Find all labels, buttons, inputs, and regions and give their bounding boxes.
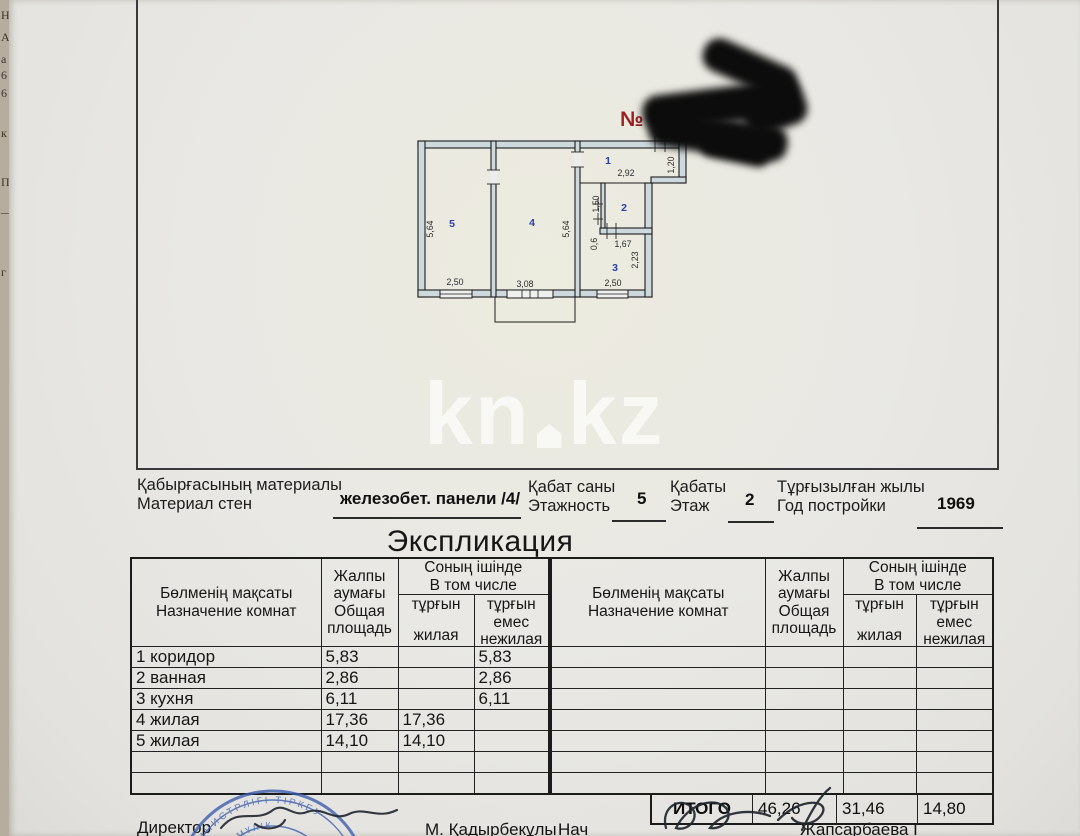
director-signature [215,798,405,836]
table-row [551,731,993,752]
table-row: 2 ванная 2,86 2,86 [131,668,549,689]
col-header-purpose: Бөлменің мақсаты Назначение комнат [131,558,321,647]
col-living-kk: тұрғын [399,596,474,614]
cell-total-area: 6,11 [321,689,398,710]
col-total-ru: Общая площадь [322,603,398,638]
cell-room-name: 1 коридор [131,647,321,668]
cell-total-area: 14,10 [321,731,398,752]
plan-partitions [495,183,651,322]
cell-room-name [131,752,321,773]
house-icon [537,424,562,448]
watermark: kn kz [424,374,665,454]
room-label-2: 2 [621,202,627,214]
storeys-label-kk: Қабат саны [528,478,615,497]
dim-room5-width: 2,50 [446,277,463,287]
cell-room-name [551,731,765,752]
cell-nonliving-area [916,752,993,773]
cell-nonliving-area [916,773,993,794]
cell-living-area: 14,10 [398,731,474,752]
col-purpose-ru: Назначение комнат [552,603,765,621]
table-row [551,752,993,773]
year-label-kk: Тұрғызылған жылы [777,478,925,497]
director-name: М. Қадырбекұлы [425,820,557,836]
material-label-kk: Қабырғасының материалы [137,476,342,495]
col-header-including: Соның ішінде В том числе [398,558,549,595]
dim-room1-width: 2,92 [617,168,634,178]
cell-living-area [398,689,474,710]
cell-room-name: 4 жилая [131,710,321,731]
col-living-ru: жилая [399,627,474,645]
room-label-3: 3 [612,262,618,274]
dim-room3-width: 2,50 [604,278,621,288]
cell-nonliving-area [474,773,549,794]
floor-label-ru: Этаж [670,497,726,516]
cell-total-area [765,752,843,773]
col-living-ru: жилая [844,627,916,645]
col-nonliving-ru: нежилая [475,631,549,647]
cell-living-area [843,668,916,689]
table-row [551,647,993,668]
explication-table-left: Бөлменің мақсаты Назначение комнат Жалпы… [130,557,550,795]
col-total-kk: Жалпы аумағы [322,568,398,603]
cell-room-name [551,752,765,773]
edge-fragment: к [1,126,7,141]
room-label-5: 5 [449,218,455,230]
plan-room-labels: 5 4 1 2 3 [449,155,627,274]
cell-living-area [843,710,916,731]
cell-total-area: 2,86 [321,668,398,689]
cell-room-name: 3 кухня [131,689,321,710]
col-nonliving-kk: тұрғын емес [917,596,993,631]
plan-door-openings [490,152,581,184]
frame-bottom-line [136,468,999,470]
cell-total-area [765,689,843,710]
floor-label-kk: Қабаты [670,478,726,497]
cell-nonliving-area [916,731,993,752]
explication-table-right: Бөлменің мақсаты Назначение комнат Жалпы… [550,557,994,795]
cell-nonliving-area [916,647,993,668]
col-header-purpose: Бөлменің мақсаты Назначение комнат [551,558,765,647]
dim-niche-height: 1,20 [666,156,676,173]
cell-living-area [398,647,474,668]
scanned-document: Н А а 6 6 к П — г [0,0,1080,836]
col-header-nonliving: тұрғын емес нежилая [916,595,993,647]
year-label: Тұрғызылған жылы Год постройки [777,478,925,516]
col-header-including: Соның ішінде В том числе [843,558,993,595]
edge-fragment: г [1,265,6,280]
col-including-kk: Соның ішінде [399,559,549,577]
cell-total-area: 17,36 [321,710,398,731]
col-header-total-area: Жалпы аумағы Общая площадь [765,558,843,647]
cell-living-area [843,689,916,710]
cell-nonliving-area [916,710,993,731]
cell-total-area [321,752,398,773]
watermark-text-left: kn [424,374,531,454]
table-row [551,710,993,731]
cell-living-area [843,752,916,773]
cell-total-area [765,668,843,689]
right-official-label: Нач [558,820,588,836]
table-row: 1 коридор 5,83 5,83 [131,647,549,668]
col-total-kk: Жалпы аумағы [766,568,843,603]
cell-room-name [551,710,765,731]
col-header-nonliving: тұрғын емес нежилая [474,595,549,647]
storeys-underline [612,520,666,522]
watermark-text-right: kz [568,374,665,454]
cell-living-area [398,752,474,773]
room-label-1: 1 [605,155,611,167]
cell-nonliving-area [474,710,549,731]
col-purpose-kk: Бөлменің мақсаты [552,585,765,603]
cell-room-name: 2 ванная [131,668,321,689]
table-row [551,689,993,710]
col-header-living: тұрғын жилая [398,595,474,647]
dim-wall-width: 0,6 [589,238,599,250]
cell-nonliving-area: 5,83 [474,647,549,668]
cell-room-name [551,689,765,710]
dim-room2-width: 1,67 [614,239,631,249]
cell-total-area [765,710,843,731]
year-underline [917,527,1003,529]
material-value: железобет. панели /4/ [340,489,520,509]
year-value: 1969 [937,494,975,514]
table-row: 3 кухня 6,11 6,11 [131,689,549,710]
frame-left-line [136,0,138,470]
floor-plan: 5 4 1 2 3 5,64 2,50 3,08 5,64 2,92 1,20 … [403,132,703,332]
cell-nonliving-area: 2,86 [474,668,549,689]
floor-label: Қабаты Этаж [670,478,726,516]
col-living-kk: тұрғын [844,596,916,614]
cell-living-area: 17,36 [398,710,474,731]
col-header-living: тұрғын жилая [843,595,916,647]
material-label-ru: Материал стен [137,495,342,514]
cell-room-name [551,668,765,689]
floor-underline [728,521,774,523]
edge-fragment: а [1,52,6,67]
col-header-total-area: Жалпы аумағы Общая площадь [321,558,398,647]
col-purpose-ru: Назначение комнат [132,603,321,621]
col-total-ru: Общая площадь [766,603,843,638]
col-nonliving-ru: нежилая [917,631,993,647]
cell-living-area [398,668,474,689]
material-label: Қабырғасының материалы Материал стен [137,476,342,514]
col-including-ru: В том числе [399,577,549,595]
totals-nonliving-area: 14,80 [917,795,992,823]
col-nonliving-kk: тұрғын емес [475,596,549,631]
cell-nonliving-area [474,752,549,773]
storeys-value: 5 [637,489,646,509]
cell-room-name [551,647,765,668]
explication-tables: Бөлменің мақсаты Назначение комнат Жалпы… [130,557,994,795]
cell-nonliving-area: 6,11 [474,689,549,710]
frame-right-line [997,0,999,470]
col-purpose-kk: Бөлменің мақсаты [132,585,321,603]
cell-total-area [765,731,843,752]
dim-room3-height: 2,23 [630,251,640,268]
year-label-ru: Год постройки [777,497,925,516]
floor-value: 2 [745,490,754,510]
material-underline [333,517,521,519]
edge-fragment: 6 [1,86,7,101]
cell-living-area [843,731,916,752]
storeys-label: Қабат саны Этажность [528,478,615,516]
storeys-label-ru: Этажность [528,497,615,516]
cell-nonliving-area [916,668,993,689]
cell-total-area: 5,83 [321,647,398,668]
cell-total-area [765,647,843,668]
table-row: 4 жилая 17,36 17,36 [131,710,549,731]
cell-nonliving-area [916,689,993,710]
table-row: 5 жилая 14,10 14,10 [131,731,549,752]
cell-living-area [398,773,474,794]
table-row [131,752,549,773]
table-row [551,668,993,689]
col-including-ru: В том числе [844,577,993,595]
explication-title: Экспликация [300,525,660,559]
dim-room5-height: 5,64 [425,220,435,237]
edge-fragment: 6 [1,68,7,83]
dim-room4-height: 5,64 [561,220,571,237]
plan-walls [418,141,686,297]
cell-room-name: 5 жилая [131,731,321,752]
col-including-kk: Соның ішінде [844,559,993,577]
dim-room4-width: 3,08 [516,279,533,289]
room-label-4: 4 [529,217,535,229]
cell-nonliving-area [474,731,549,752]
cell-living-area [843,647,916,668]
official-signature [652,786,892,836]
dim-room2-height: 1,50 [591,195,601,212]
plan-dimension-labels: 5,64 2,50 3,08 5,64 2,92 1,20 1,50 0,6 1… [425,156,676,289]
